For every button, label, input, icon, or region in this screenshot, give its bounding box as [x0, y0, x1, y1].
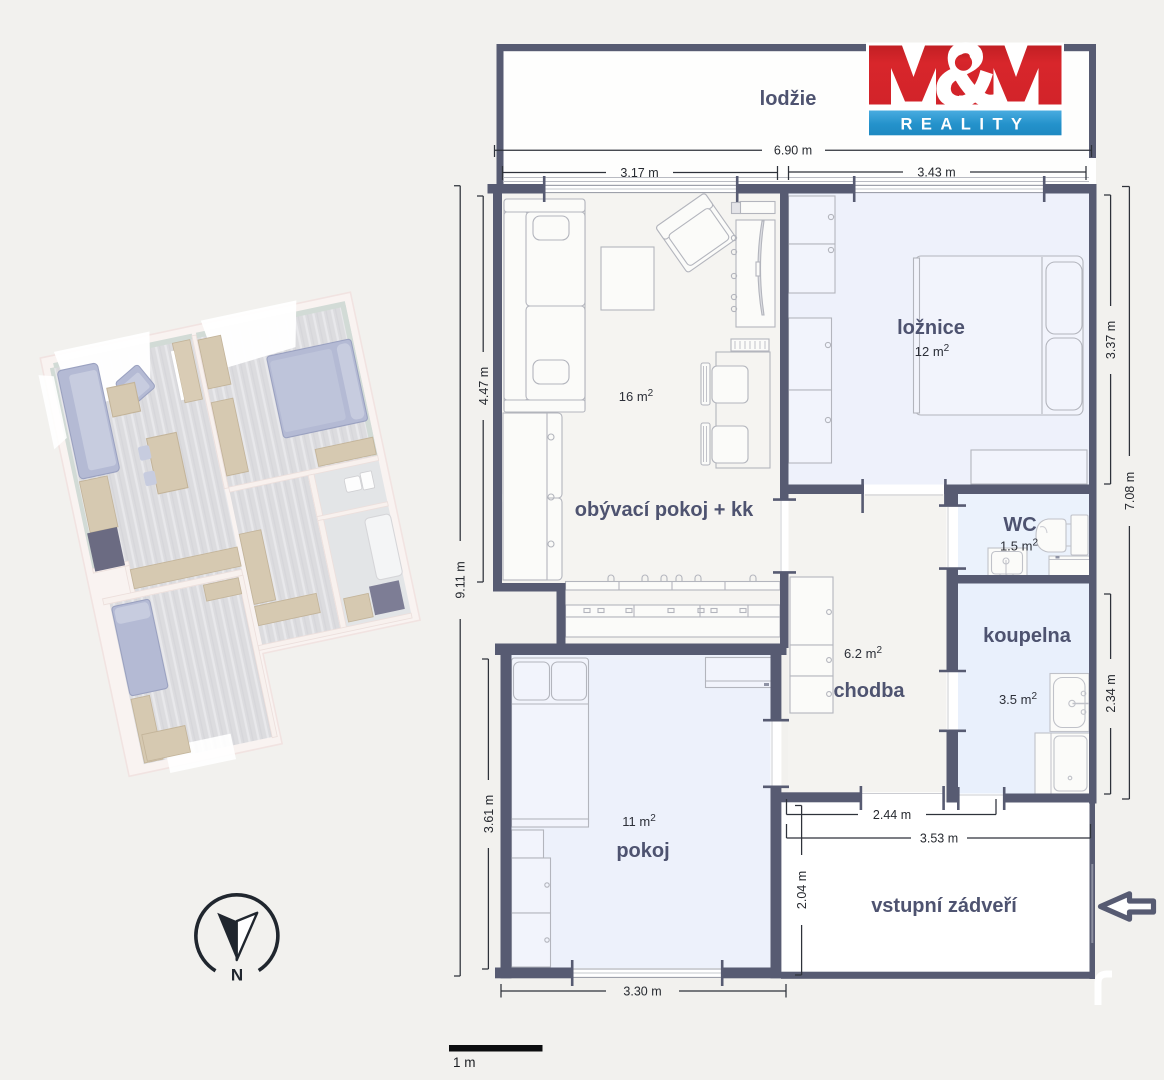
- svg-text:2.04 m: 2.04 m: [795, 871, 809, 909]
- svg-text:vstupní zádveří: vstupní zádveří: [871, 895, 1018, 917]
- svg-text:7.08 m: 7.08 m: [1123, 472, 1137, 510]
- svg-text:chodba: chodba: [833, 680, 905, 702]
- svg-text:2.34 m: 2.34 m: [1104, 674, 1118, 712]
- svg-text:lodžie: lodžie: [760, 88, 817, 110]
- svg-text:&: &: [934, 25, 998, 124]
- svg-text:4.47 m: 4.47 m: [477, 367, 491, 405]
- svg-text:3.17 m: 3.17 m: [620, 166, 658, 180]
- svg-text:3.61 m: 3.61 m: [482, 795, 496, 833]
- svg-text:WC: WC: [1003, 514, 1036, 536]
- svg-text:3.30 m: 3.30 m: [623, 984, 661, 998]
- svg-text:9.11 m: 9.11 m: [454, 561, 468, 598]
- svg-text:REALITY: REALITY: [900, 116, 1030, 134]
- svg-text:2.44 m: 2.44 m: [873, 808, 911, 822]
- svg-text:N: N: [231, 966, 243, 985]
- svg-text:1 m: 1 m: [453, 1055, 476, 1070]
- svg-text:3.37 m: 3.37 m: [1104, 321, 1118, 359]
- svg-text:pokoj: pokoj: [616, 840, 669, 862]
- svg-text:3.43 m: 3.43 m: [917, 165, 955, 179]
- svg-text:obývací pokoj + kk: obývací pokoj + kk: [575, 499, 754, 521]
- svg-text:6.90 m: 6.90 m: [774, 144, 812, 158]
- svg-text:ložnice: ložnice: [897, 317, 965, 339]
- svg-text:3.53 m: 3.53 m: [920, 831, 958, 845]
- svg-text:koupelna: koupelna: [983, 625, 1072, 647]
